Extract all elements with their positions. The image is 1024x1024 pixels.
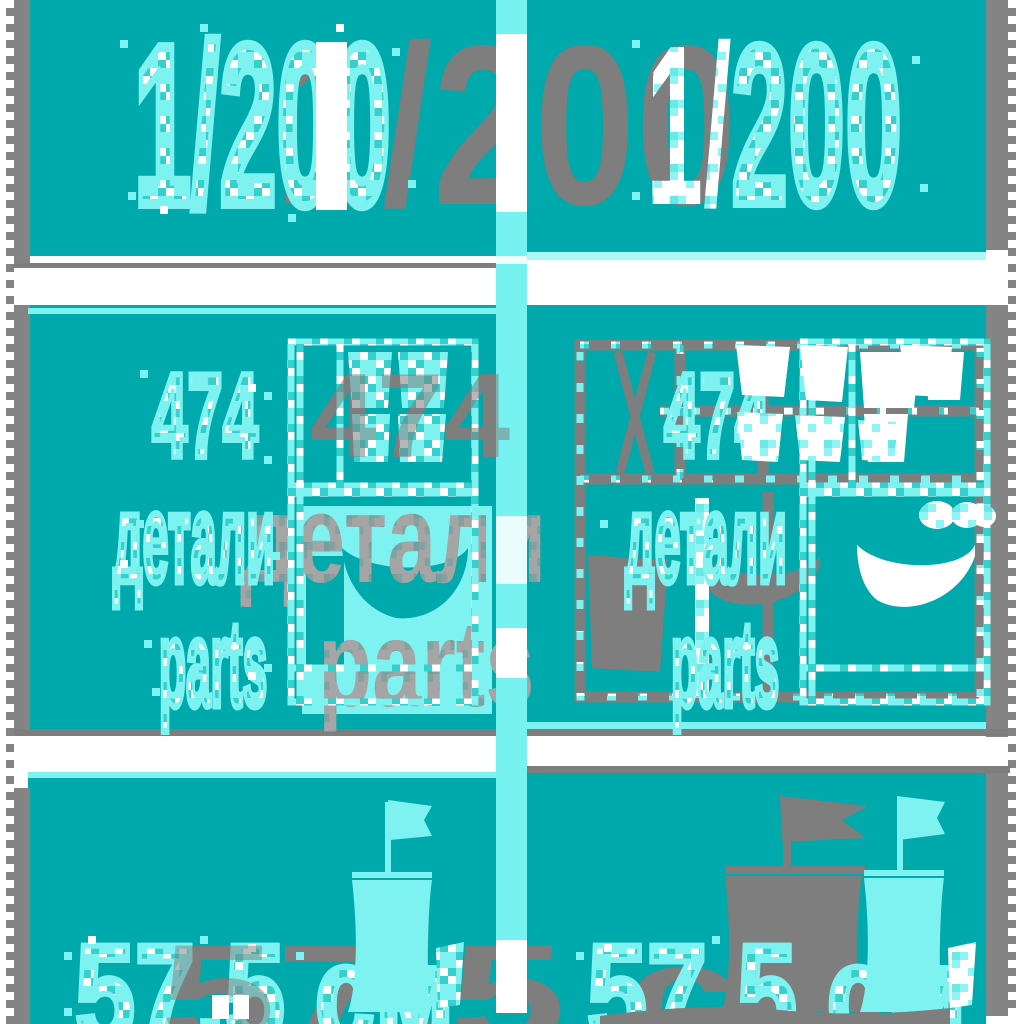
svg-text:1/200: 1/200 [134,0,391,253]
svg-text:474: 474 [310,349,510,483]
svg-text:1/: 1/ [646,0,732,253]
svg-text:parts: parts [159,594,267,732]
svg-text:474: 474 [152,350,258,484]
svg-text:200: 200 [731,0,902,253]
svg-text:детали: детали [113,469,275,610]
svg-text:parts: parts [671,594,779,732]
svg-text:детали: детали [625,469,787,610]
